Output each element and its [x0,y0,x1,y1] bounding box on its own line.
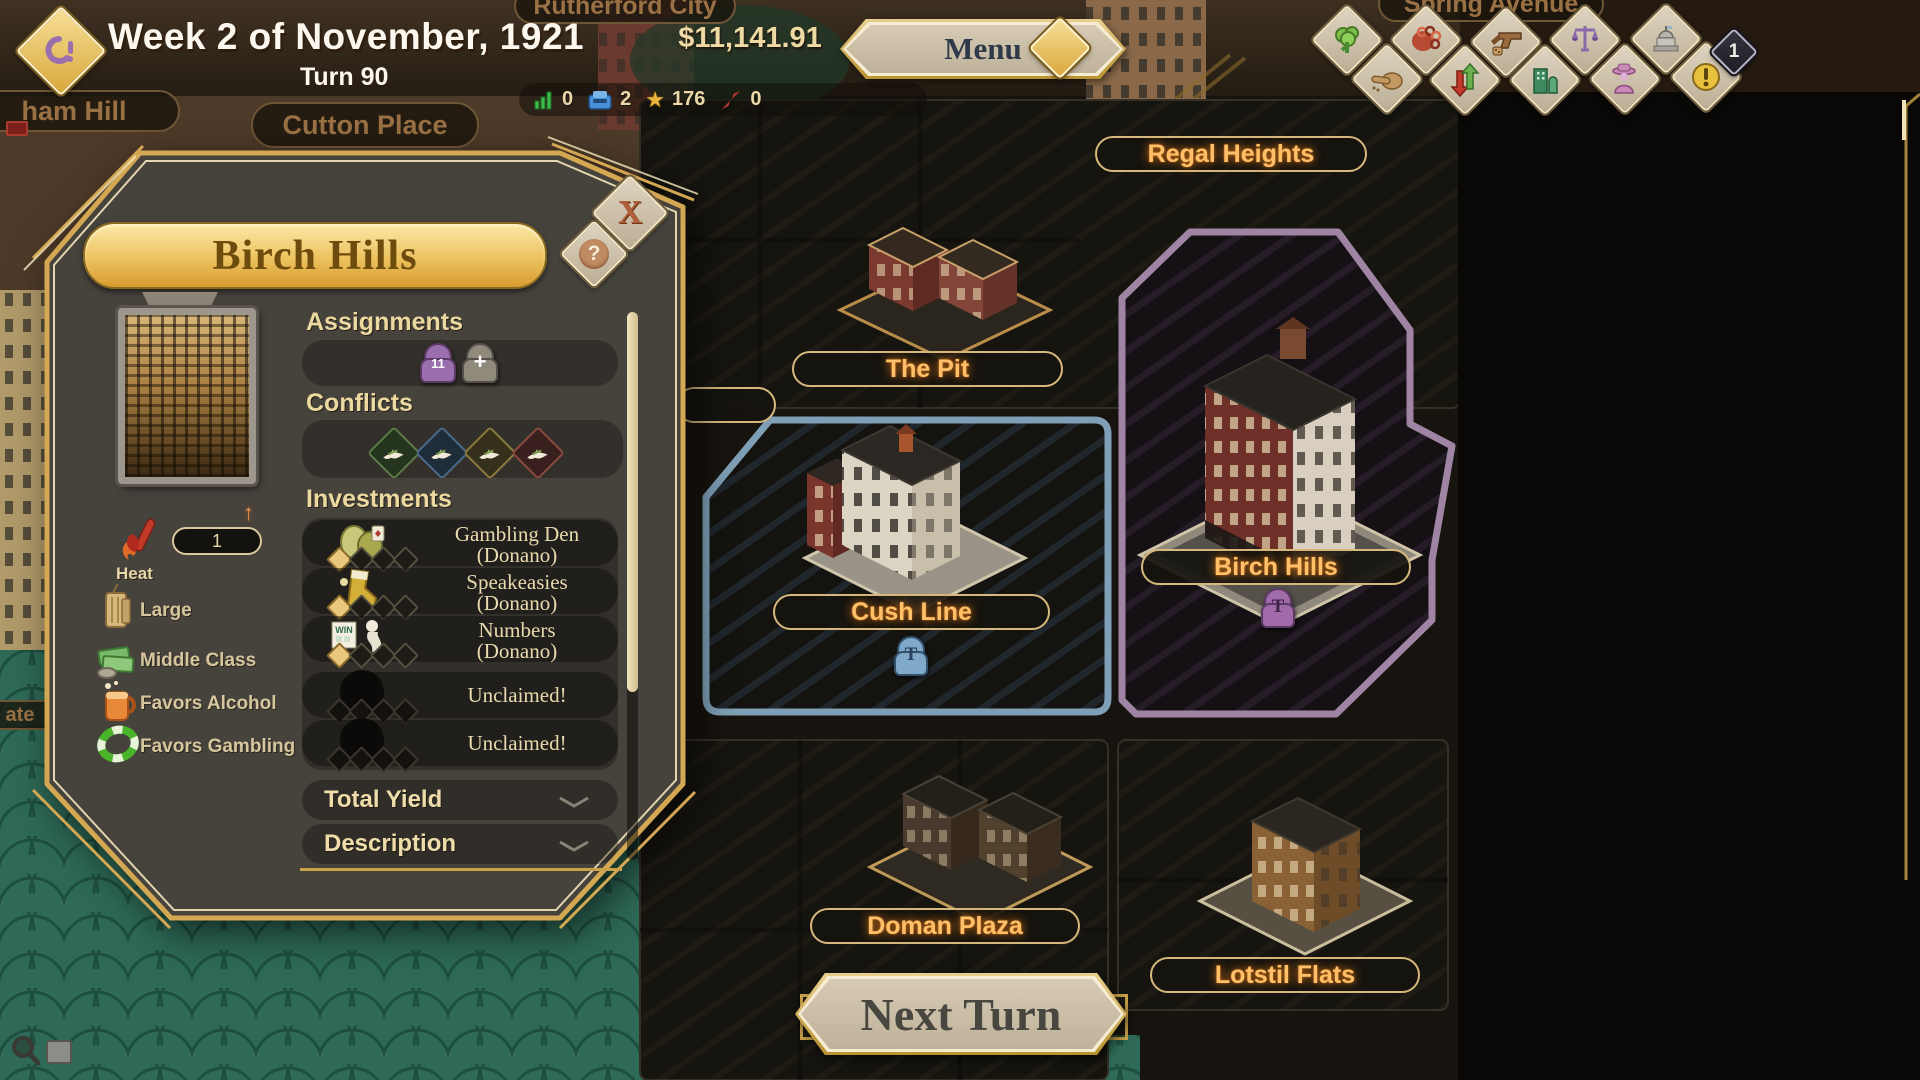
goose-icon [377,436,411,470]
claim-pip [392,642,419,669]
conflict-token-maroon[interactable] [511,426,565,480]
investments-box: Gambling Den (Donano) Speakeasies (Donan… [302,518,618,770]
dagger-icon [719,88,743,112]
buildings-icon [1522,57,1568,103]
investment-row[interactable]: Speakeasies (Donano) [302,568,618,614]
conflict-token-blue[interactable] [415,426,469,480]
conflict-token-olive[interactable] [463,426,517,480]
inbox-icon [587,89,613,111]
chevron-down-icon [557,839,591,853]
investment-row[interactable]: Unclaimed! [302,672,618,718]
description-expander[interactable]: Description [302,824,618,864]
heat-icon [115,516,165,566]
chevron-down-icon [557,795,591,809]
investment-row[interactable]: Unclaimed! [302,720,618,766]
goose-icon [425,436,459,470]
favor-alcohol-icon [100,680,140,724]
size-label[interactable]: Large [140,600,192,622]
assignments-box [302,340,618,386]
detective-icon [1602,56,1648,102]
map-marker-icon [6,121,28,136]
goose-icon [521,436,555,470]
total-yield-expander[interactable]: Total Yield [302,780,618,820]
assignment-token[interactable]: 11 [420,343,456,383]
location-photo [118,308,256,484]
size-icon [100,583,134,631]
game-screen: Rutherford City Spring Avenue Cutton Pla… [0,0,1920,1080]
conflict-token-green[interactable] [367,426,421,480]
turn-clock-icon [31,21,91,81]
stat-group[interactable]: 0 [719,88,761,112]
heat-label: Heat [116,564,153,584]
investments-header: Investments [306,485,452,514]
next-turn-button[interactable]: Next Turn [795,973,1127,1055]
class-icon [95,643,137,679]
stat-group[interactable]: 2 [587,88,631,111]
panel-scrollbar-thumb[interactable] [627,312,638,692]
date-text: Week 2 of November, 1921 [108,16,584,58]
stat-group[interactable]: ★ 176 [645,88,705,111]
class-label[interactable]: Middle Class [140,650,256,672]
favor-alcohol-label[interactable]: Favors Alcohol [140,693,277,715]
favor-gambling-label[interactable]: Favors Gambling [140,736,295,758]
favor-gambling-icon [96,722,140,766]
close-icon: X [605,188,655,238]
conflicts-header: Conflicts [306,389,413,418]
location-panel-frame [0,0,1920,1080]
help-icon: ? [572,232,616,276]
bar-chart-icon [533,89,555,111]
assignments-header: Assignments [306,308,463,337]
heat-value[interactable]: 1 [172,527,262,555]
turn-counter: Turn 90 [300,63,388,92]
minimap-toggle[interactable] [46,1040,72,1064]
plus-icon: + [462,349,498,375]
up-down-arrows-icon [1442,57,1488,103]
investment-row[interactable]: Gambling Den (Donano) [302,520,618,566]
conflicts-box [302,420,623,478]
magnifier-icon[interactable] [10,1035,40,1067]
investment-row[interactable]: WIN Numbers (Donano) [302,616,618,662]
money-display: $11,141.91 [640,22,860,55]
goose-icon [473,436,507,470]
svg-text:WIN: WIN [335,625,353,635]
panel-title: Birch Hills [83,222,547,289]
stat-group[interactable]: 0 [533,88,573,111]
pointing-hand-icon [1364,56,1410,102]
add-assignment-button[interactable]: + [462,343,498,383]
claim-pip [392,746,419,773]
star-icon: ★ [645,89,665,111]
heat-up-arrow-icon: ↑ [243,500,254,526]
resources-bar: 0 2 ★ 176 0 [519,83,927,116]
